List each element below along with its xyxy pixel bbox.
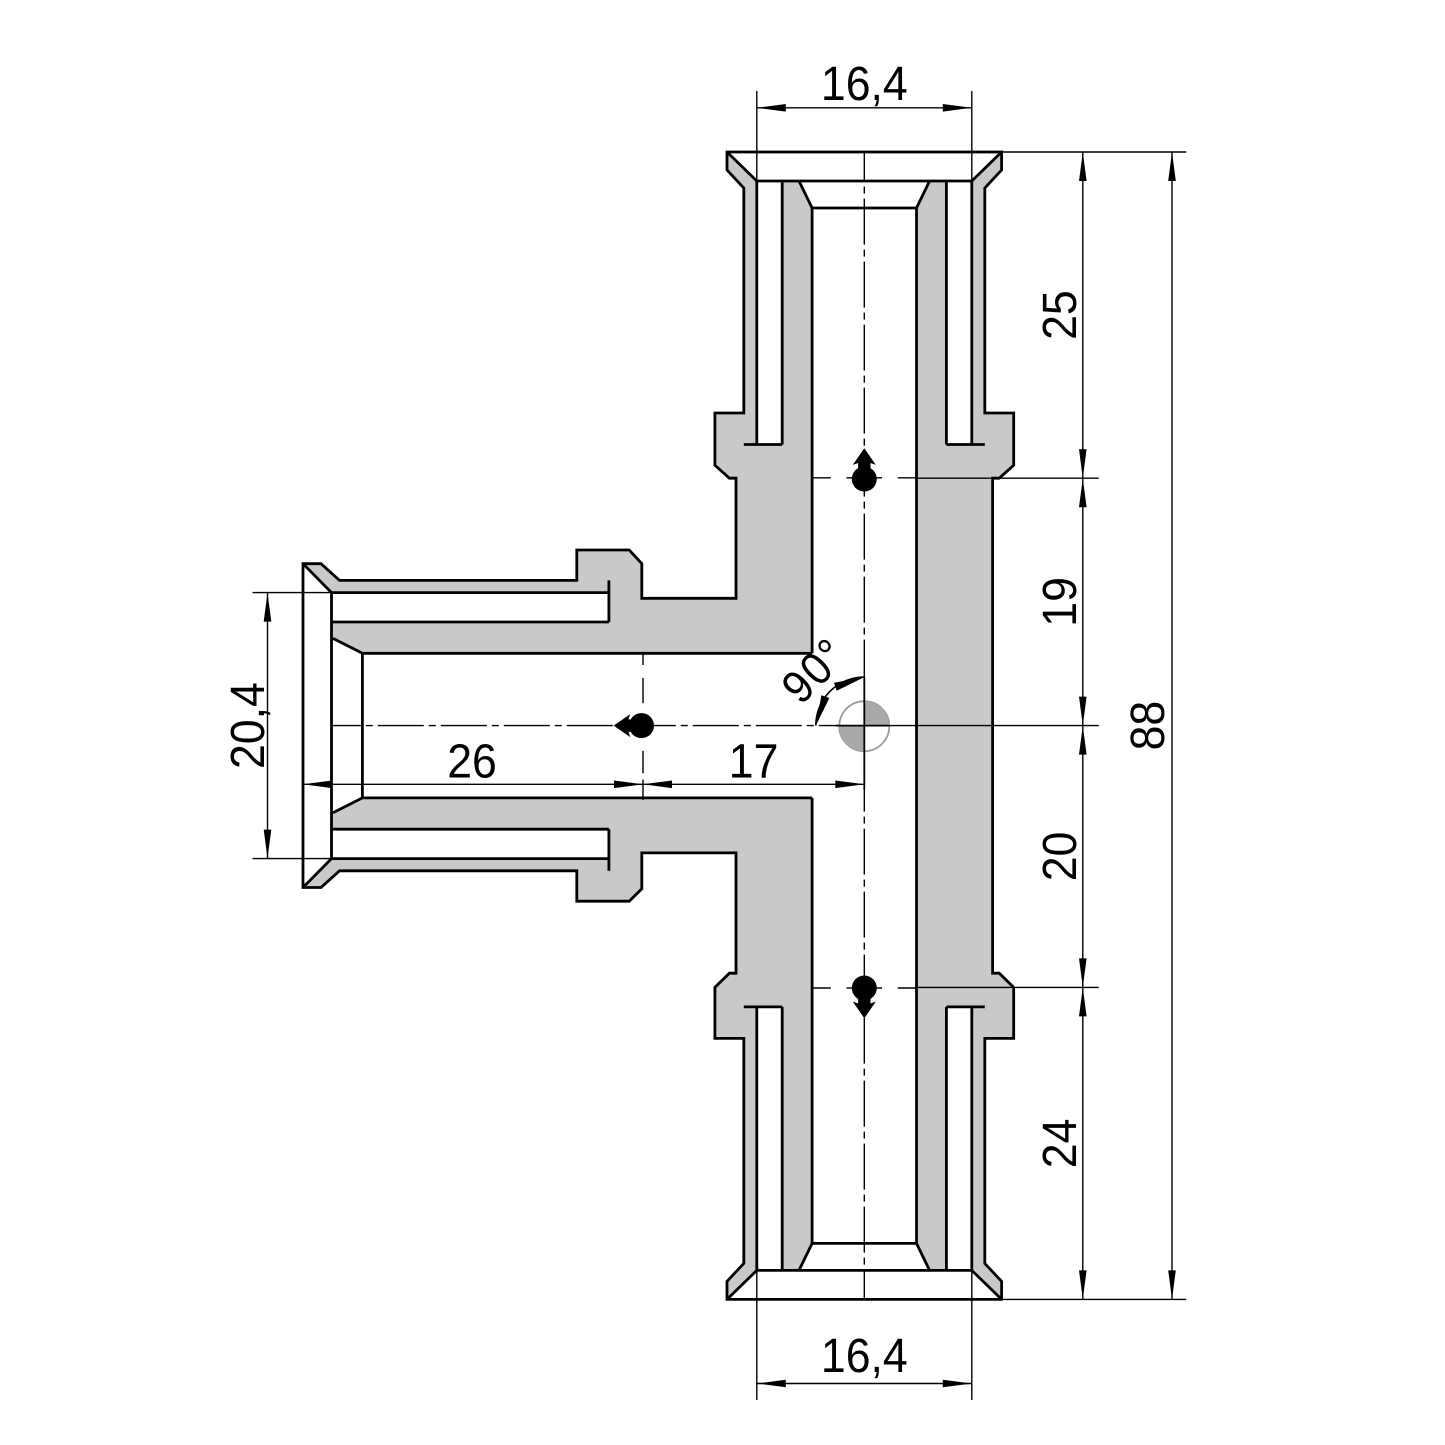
- svg-text:19: 19: [1032, 577, 1086, 627]
- svg-text:24: 24: [1032, 1119, 1086, 1169]
- svg-text:26: 26: [447, 734, 497, 788]
- svg-text:88: 88: [1120, 701, 1174, 751]
- svg-text:16,4: 16,4: [821, 56, 908, 110]
- svg-text:20,4: 20,4: [220, 682, 274, 769]
- svg-text:20: 20: [1032, 832, 1086, 882]
- svg-text:25: 25: [1032, 290, 1086, 340]
- svg-text:17: 17: [729, 734, 779, 788]
- svg-text:16,4: 16,4: [821, 1328, 908, 1382]
